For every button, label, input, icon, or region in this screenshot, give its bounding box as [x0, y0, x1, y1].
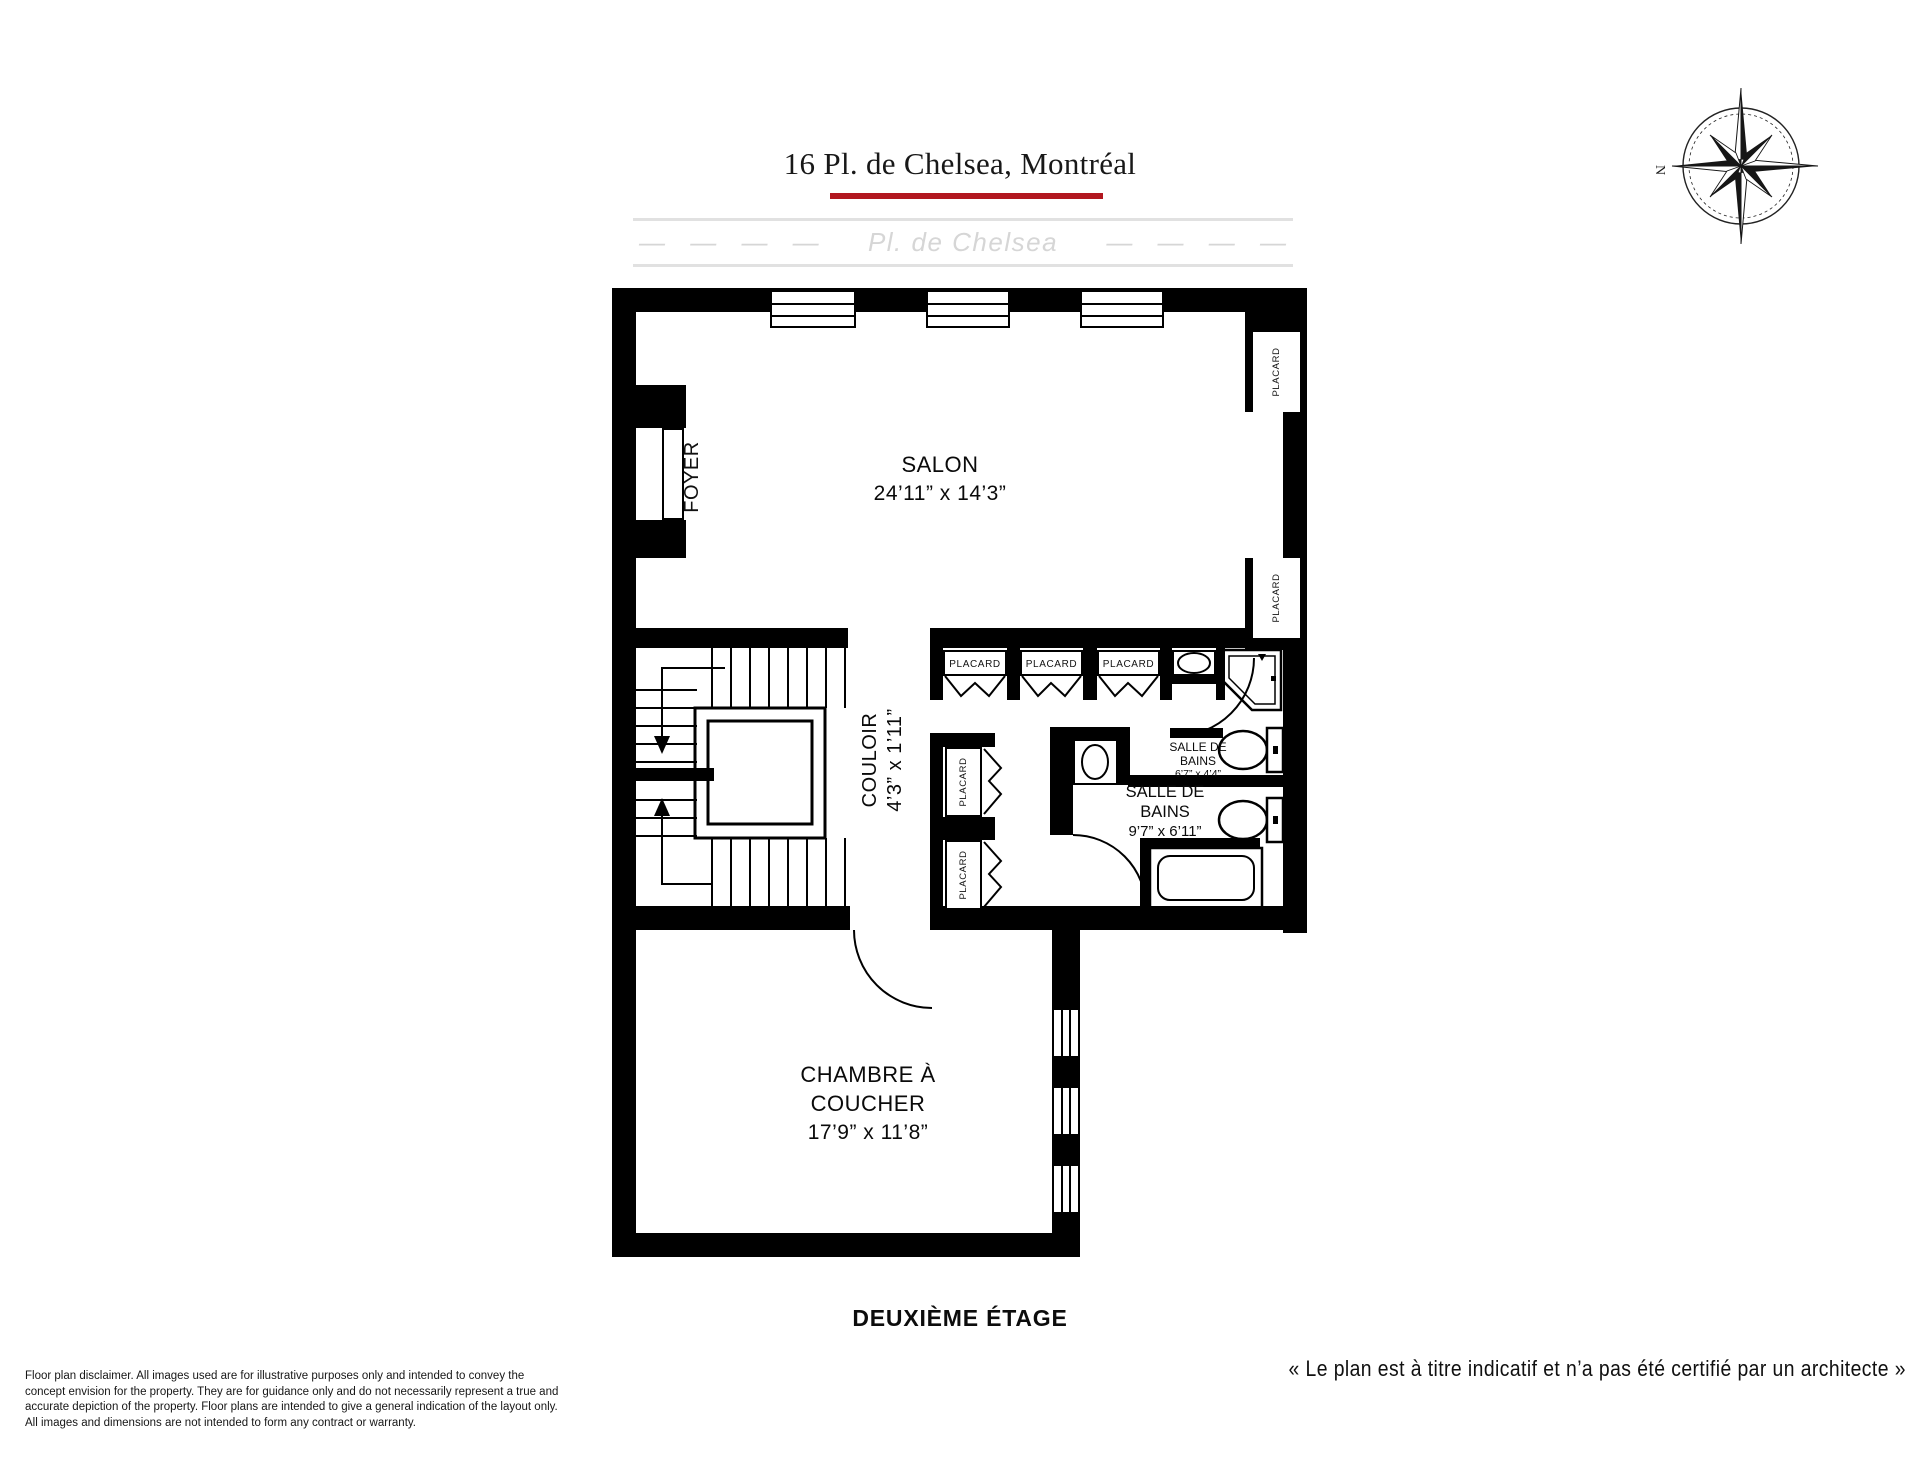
bathtub-icon [1150, 848, 1262, 908]
stair-well [695, 708, 825, 838]
street-dashes-left: — — — — [639, 227, 820, 258]
closet-label: PLACARD [1026, 659, 1077, 670]
window-icon [1080, 290, 1164, 328]
room-dims: 9’7” x 6’11” [1100, 822, 1230, 841]
street-label-row: — — — — Pl. de Chelsea — — — — [639, 224, 1287, 260]
stair-up-arrow-icon [654, 798, 670, 816]
room-name: SALLE DE [1100, 783, 1230, 803]
wall-segment [636, 520, 686, 558]
closet-label: PLACARD [949, 659, 1000, 670]
street-band: — — — — Pl. de Chelsea — — — — [633, 218, 1293, 270]
room-label-salle-de-bains-1: SALLE DE BAINS 6’7” x 4’4” [1148, 740, 1248, 781]
room-dims: 6’7” x 4’4” [1148, 768, 1248, 781]
closet-label-right-1: PLACARD [1269, 332, 1283, 412]
closet-label-couloir-2: PLACARD [957, 840, 969, 910]
room-label-chambre: CHAMBRE À COUCHER 17’9” x 11’8” [728, 1060, 1008, 1147]
vanity-box [1172, 650, 1216, 676]
closet-label: PLACARD [1271, 573, 1282, 622]
wall-segment [1170, 728, 1223, 738]
closet-label: PLACARD [958, 757, 969, 806]
wall-segment [1007, 648, 1020, 700]
architect-note: « Le plan est à titre indicatif et n’a p… [1188, 1356, 1906, 1382]
vanity-box [1073, 739, 1118, 785]
stair-down-arrow-icon [654, 736, 670, 754]
salon-right-alcove [1245, 412, 1283, 558]
wall-segment [1056, 906, 1307, 930]
wall-segment [1166, 676, 1223, 684]
room-name: SALLE DE [1148, 740, 1248, 754]
room-dims: 24’11” x 14’3” [800, 479, 1080, 508]
wall-segment [1052, 906, 1080, 1008]
wall-segment [1050, 727, 1073, 835]
wall-segment [612, 1233, 1080, 1257]
wall-segment [1140, 838, 1150, 908]
closet-top-2: PLACARD [1020, 650, 1083, 676]
wall-segment [930, 648, 943, 700]
wall-segment [1083, 648, 1097, 700]
wall-segment [1118, 739, 1130, 785]
wall-segment [1160, 648, 1172, 700]
door-arc [854, 930, 932, 1008]
page-title: 16 Pl. de Chelsea, Montréal [0, 146, 1920, 182]
street-name: Pl. de Chelsea [868, 227, 1058, 258]
wall-segment [943, 817, 995, 840]
closet-top-3: PLACARD [1097, 650, 1160, 676]
disclaimer-text: Floor plan disclaimer. All images used a… [25, 1369, 558, 1431]
room-name: CHAMBRE À [728, 1060, 1008, 1089]
closet-label-right-2: PLACARD [1269, 558, 1283, 638]
wall-segment [636, 385, 686, 428]
shower-icon [1223, 650, 1281, 710]
wall-segment [1052, 1214, 1080, 1257]
closet-label: PLACARD [1271, 347, 1282, 396]
street-line-top [633, 218, 1293, 221]
room-name: COUCHER [728, 1089, 1008, 1118]
floor-plan: PLACARD PLACARD PLACARD [610, 285, 1310, 1260]
compass-points [1672, 88, 1818, 244]
room-label-foyer: FOYER [681, 422, 703, 532]
floor-label: DEUXIÈME ÉTAGE [0, 1305, 1920, 1332]
architect-note-text: « Le plan est à titre indicatif et n’a p… [1289, 1356, 1906, 1382]
wall-segment [612, 288, 636, 1257]
wall-segment [612, 628, 848, 648]
title-underline [830, 193, 1103, 199]
room-dims: 4’3” x 1’11” [883, 680, 908, 840]
room-label-salon: SALON 24’11” x 14’3” [800, 450, 1080, 508]
door-arc [1073, 835, 1146, 908]
closet-label: PLACARD [1103, 659, 1154, 670]
closet-label: PLACARD [958, 850, 969, 899]
room-name: SALON [800, 450, 1080, 479]
wall-segment [1052, 1136, 1080, 1164]
room-name: BAINS [1100, 803, 1230, 823]
closet-label-couloir-1: PLACARD [957, 747, 969, 817]
room-label-salle-de-bains-2: SALLE DE BAINS 9’7” x 6’11” [1100, 783, 1230, 841]
wall-segment [930, 733, 943, 930]
disclaimer-line: All images and dimensions are not intend… [25, 1416, 558, 1432]
room-name: BAINS [1148, 754, 1248, 768]
room-dims: 17’9” x 11’8” [728, 1118, 1008, 1147]
staircase [636, 648, 845, 906]
wall-segment [1216, 648, 1225, 700]
window-icon [1052, 1008, 1080, 1058]
wall-segment [1073, 727, 1130, 739]
room-name: COULOIR [858, 680, 883, 840]
compass-rose-icon: N [1652, 78, 1828, 256]
street-line-bottom [633, 264, 1293, 267]
compass-north-label: N [1652, 165, 1667, 175]
window-icon [1052, 1164, 1080, 1214]
disclaimer-line: concept envision for the property. They … [25, 1385, 558, 1401]
street-dashes-right: — — — — [1106, 227, 1287, 258]
wall-segment [1052, 1058, 1080, 1086]
room-label-couloir: COULOIR 4’3” x 1’11” [858, 680, 910, 840]
disclaimer-line: accurate depiction of the property. Floo… [25, 1400, 558, 1416]
window-icon [926, 290, 1010, 328]
wall-segment [612, 906, 850, 930]
room-name: FOYER [678, 441, 707, 512]
closet-top-1: PLACARD [943, 650, 1007, 676]
disclaimer-line: Floor plan disclaimer. All images used a… [25, 1369, 558, 1385]
window-icon [770, 290, 856, 328]
wall-segment [943, 733, 995, 747]
window-icon [1052, 1086, 1080, 1136]
